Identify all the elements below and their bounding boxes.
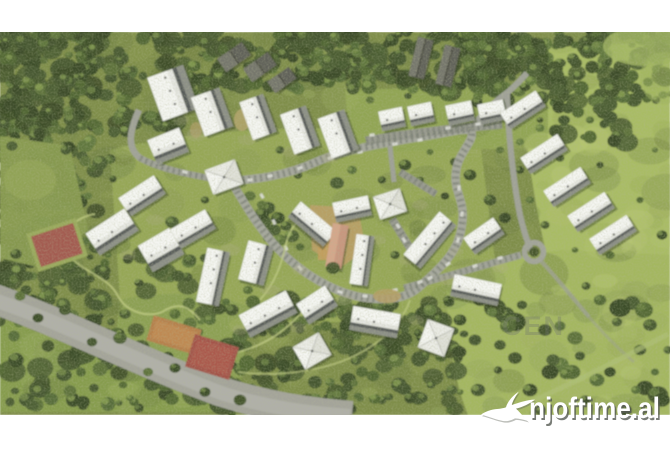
svg-text:njoftime.al: njoftime.al bbox=[529, 391, 660, 424]
svg-text:CEN: CEN bbox=[502, 311, 565, 341]
